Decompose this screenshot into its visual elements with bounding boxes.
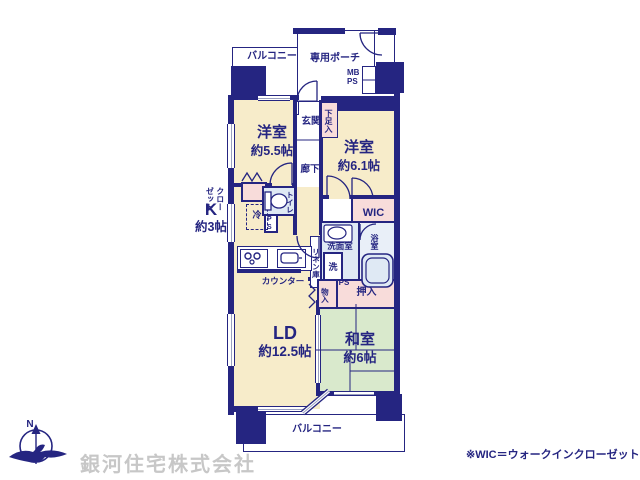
storage-label: 物入 bbox=[320, 283, 328, 307]
shoe-cabinet-label: 下足入 bbox=[323, 105, 332, 137]
wic-label: WIC bbox=[351, 207, 396, 219]
counter-label: カウンター bbox=[253, 277, 313, 287]
bedroom1-name: 洋室 bbox=[241, 125, 303, 142]
oshiire-label: 押入 bbox=[344, 287, 389, 298]
living-size: 約12.5帖 bbox=[245, 344, 325, 359]
plan-linework bbox=[0, 0, 640, 480]
compass-bird-logo bbox=[8, 424, 70, 476]
washroom-label: 洗面室 bbox=[321, 242, 359, 252]
mb-ps-label: MB PS bbox=[347, 69, 365, 87]
laundry-label: 洗 bbox=[324, 262, 342, 272]
bedroom2-size: 約6.1帖 bbox=[328, 159, 390, 173]
balcony-bottom-label: バルコニー bbox=[285, 424, 349, 435]
floorplan-canvas: バルコニー 専用ポーチ MB PS 玄関 下足入 洋室 約5.5帖 洋室 約6.… bbox=[0, 0, 640, 480]
japanese-room-name: 和室 bbox=[330, 332, 390, 349]
living-name: LD bbox=[245, 323, 325, 343]
kitchen-size: 約3帖 bbox=[188, 220, 234, 234]
bathroom-label: 浴室 bbox=[369, 229, 378, 255]
bedroom1-size: 約5.5帖 bbox=[241, 144, 303, 158]
bird-silhouette-icon bbox=[9, 445, 67, 463]
kitchen-name: K bbox=[196, 200, 226, 219]
bedroom2-name: 洋室 bbox=[328, 140, 390, 157]
toilet-label: トイレ bbox=[285, 189, 293, 215]
japanese-room-size: 約6帖 bbox=[330, 351, 390, 366]
ps-upper-label: PS bbox=[265, 216, 273, 232]
wic-note: ※WIC＝ウォークインクローゼット bbox=[466, 446, 640, 462]
fridge-label: 冷 bbox=[248, 210, 266, 220]
hallway-label: 廊下 bbox=[297, 165, 323, 176]
porch-label: 専用ポーチ bbox=[303, 53, 367, 64]
balcony-top-label: バルコニー bbox=[240, 51, 304, 62]
company-name: 銀河住宅株式会社 bbox=[80, 448, 256, 477]
